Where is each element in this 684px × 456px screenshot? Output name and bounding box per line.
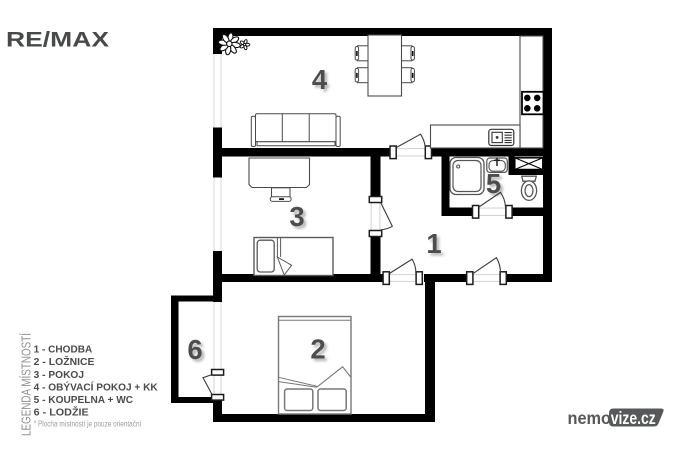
svg-text:5 - KOUPELNA + WC: 5 - KOUPELNA + WC (34, 395, 133, 406)
svg-text:2 - LOŽNICE: 2 - LOŽNICE (34, 355, 95, 368)
svg-text:2: 2 (310, 334, 325, 365)
svg-text:1: 1 (426, 228, 441, 259)
svg-text:5: 5 (486, 168, 501, 199)
svg-text:1 - CHODBA: 1 - CHODBA (34, 345, 92, 356)
svg-text:4: 4 (312, 64, 328, 95)
svg-text:LEGENDA MÍSTNOSTÍ: LEGENDA MÍSTNOSTÍ (19, 333, 34, 436)
svg-text:RE/MAX: RE/MAX (6, 28, 110, 52)
svg-text:3: 3 (289, 201, 304, 232)
svg-text:4 - OBÝVACÍ POKOJ + KK: 4 - OBÝVACÍ POKOJ + KK (34, 380, 159, 393)
svg-text:6 - LODŽIE: 6 - LODŽIE (34, 406, 89, 419)
svg-text:6: 6 (187, 334, 202, 365)
svg-text:nemo: nemo (568, 408, 612, 428)
svg-text:vize.cz: vize.cz (611, 408, 656, 428)
svg-text:* Plocha místností je pouze or: * Plocha místností je pouze orientační (34, 420, 142, 429)
svg-text:3 - POKOJ: 3 - POKOJ (34, 370, 84, 381)
